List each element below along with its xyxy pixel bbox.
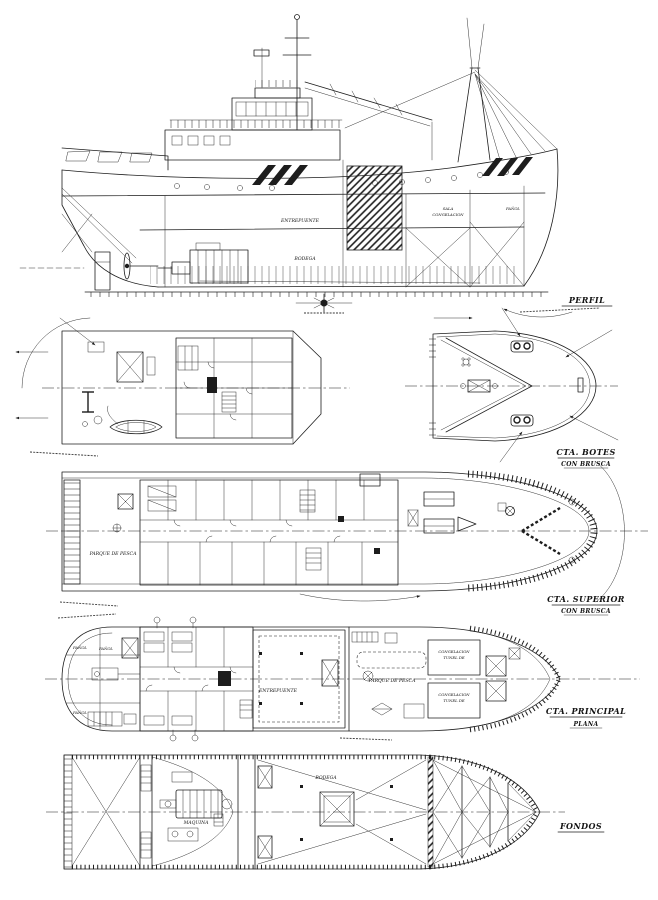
drawing-sheet: ENTREPUENTE BODEGA SALA CONGELACION PAÑO… [0,0,658,900]
portholes [174,169,508,190]
stem-fitting [578,378,583,392]
label-panol-3: PAÑOL [72,710,87,715]
lifeboat [83,406,163,434]
illegible-annotation [58,614,116,618]
boat-deck-view-label: CTA. BOTES CON BRUSCA [556,447,615,468]
engine-room [152,757,233,866]
bollard-pair-top [511,341,533,352]
shell-margin-bow-top [430,757,537,812]
vent-glyph [462,358,470,366]
annotation-arrow [60,318,95,345]
stern-ramp [64,480,80,584]
annotation-arrow [566,330,612,357]
anchor-chain-stbd [522,531,560,554]
stair-trunk [207,377,217,393]
bow-braced-boxes [486,648,520,701]
aft-gantry-mast [345,18,557,162]
accommodation-block [140,480,398,585]
bollard-pair-bottom [511,415,533,426]
label-parque-de-pesca-main: PARQUE DE PESCA [368,678,416,684]
view-label-perfil: PERFIL [568,295,605,305]
label-tunel2-line2: TUNEL DE [443,698,465,703]
illegible-annotation [340,738,392,740]
foremast [254,15,311,131]
deck-fitting [113,524,121,532]
profile-view: ENTREPUENTE BODEGA SALA CONGELACION PAÑO… [20,15,612,318]
illegible-annotation [520,308,600,312]
annotation-leader [300,594,420,601]
funnel-casing [117,352,155,382]
radar-antenna [254,50,269,56]
main-deck-view-label: CTA. PRINCIPAL PLANA [546,706,626,728]
label-parque-de-pesca-superior: PARQUE DE PESCA [89,551,137,557]
view-label-fondos: FONDOS [559,821,602,831]
boat-deck-plan [16,318,350,456]
view-sublabel-principal: PLANA [572,721,598,728]
upper-deck-view-label: CTA. SUPERIOR CON BRUSCA [547,594,625,615]
view-sublabel-superior: CON BRUSCA [561,608,611,615]
tank-plan-view-label: FONDOS [558,821,604,832]
label-bodega-profile: BODEGA [293,256,316,262]
superstructure [62,80,342,170]
profile-view-label: PERFIL [504,295,612,317]
label-panol-profile: PAÑOL [505,206,520,211]
label-bodega-fondos: BODEGA [314,775,337,781]
tank-plan: MAQUINA BODEGA FONDOS [46,755,604,869]
forecastle-deck-plan: CTA. BOTES CON BRUSCA [405,308,618,468]
label-congelacion: CONGELACION [432,212,464,217]
label-tunel1-line1: CONGELACION [438,649,470,654]
view-sublabel-botes: CON BRUSCA [561,461,611,468]
upper-deck-plan: PARQUE DE PESCA [46,462,648,615]
view-label-botes: CTA. BOTES [556,447,615,457]
fish-hold [258,757,433,867]
ladder-marks [429,336,436,358]
frame-ruler [85,292,548,297]
davit-swing-arc [22,318,90,388]
illegible-annotation [60,602,118,606]
stair-trunk [218,671,231,686]
main-deck-plan: PAÑOL PAÑOL PAÑOL ENTREPUENTE [45,614,640,741]
label-maquina: MAQUINA [183,820,209,826]
view-label-principal: CTA. PRINCIPAL [546,706,626,716]
anchor-chain-port [522,508,560,531]
ladder-marks [429,418,436,440]
label-tunel2-line1: CONGELACION [438,692,470,697]
label-entrepuente-main: ENTREPUENTE [258,688,298,694]
deckhouse-rooms [176,338,292,438]
net-casing-hatched-block [347,166,402,250]
mast-foot-symbol [82,392,94,412]
rudder [95,252,110,290]
annotation-arrow [570,416,618,440]
general-arrangement-drawing: ENTREPUENTE BODEGA SALA CONGELACION PAÑO… [0,0,658,900]
view-label-superior: CTA. SUPERIOR [547,594,625,604]
shell-margin-bow-bottom [430,812,537,867]
deck-machine [88,342,104,352]
hatch-xbox [118,494,133,509]
label-tunel1-line2: TUNEL DE [443,655,465,660]
illegible-annotation [30,452,98,456]
label-entrepuente-profile: ENTREPUENTE [280,218,320,224]
label-sala: SALA [443,206,454,211]
annotation-arc [596,462,625,602]
label-panol-1: PAÑOL [72,645,87,650]
label-panol-2: PAÑOL [98,646,113,651]
foredeck-gear [360,474,575,563]
